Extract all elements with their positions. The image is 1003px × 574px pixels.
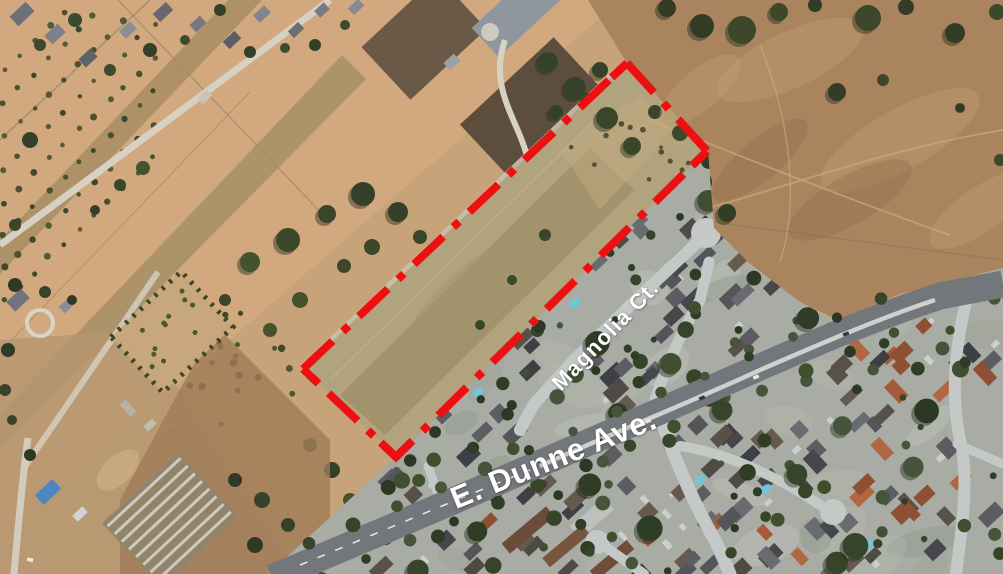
parcel-boundary-corner	[381, 443, 396, 457]
parcel-boundary-corner	[303, 355, 318, 369]
parcel-boundary-corner	[396, 442, 411, 457]
parcel-boundary-corner	[693, 135, 707, 151]
parcel-boundary-line	[303, 63, 707, 457]
satellite-map-view: Magnolia Ct. E. Dunne Ave.	[0, 0, 1003, 574]
parcel-boundary-corner	[627, 63, 641, 79]
parcel-boundary-corner	[692, 151, 707, 166]
